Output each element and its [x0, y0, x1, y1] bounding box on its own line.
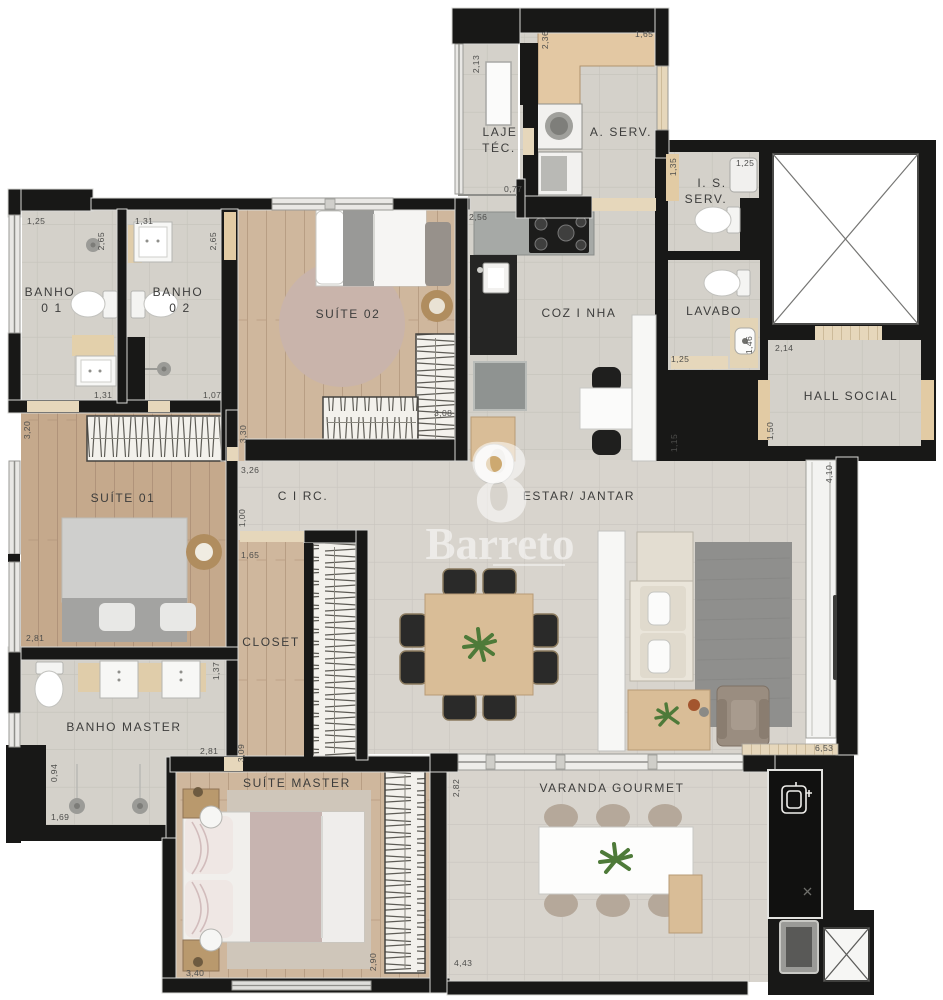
- svg-text:CLOSET: CLOSET: [242, 635, 300, 649]
- svg-text:C I RC.: C I RC.: [278, 489, 329, 503]
- svg-text:SUÍTE 01: SUÍTE 01: [91, 490, 156, 505]
- svg-text:VARANDA GOURMET: VARANDA GOURMET: [539, 781, 684, 795]
- svg-text:2,81: 2,81: [26, 633, 44, 643]
- svg-text:0,77: 0,77: [504, 184, 522, 194]
- svg-text:1,07: 1,07: [203, 390, 221, 400]
- svg-text:I. S.: I. S.: [697, 176, 726, 190]
- svg-text:6,53: 6,53: [815, 743, 833, 753]
- svg-text:2,13: 2,13: [471, 55, 481, 73]
- svg-text:2,90: 2,90: [368, 953, 378, 971]
- svg-text:1,37: 1,37: [211, 662, 221, 680]
- svg-text:3,40: 3,40: [186, 968, 204, 978]
- svg-text:2,65: 2,65: [96, 232, 106, 250]
- svg-text:LAJE: LAJE: [482, 125, 517, 139]
- svg-text:1,50: 1,50: [765, 422, 775, 440]
- svg-text:1,25: 1,25: [671, 354, 689, 364]
- svg-text:2,65: 2,65: [208, 232, 218, 250]
- svg-text:ESTAR/ JANTAR: ESTAR/ JANTAR: [523, 489, 635, 503]
- svg-text:1,35: 1,35: [668, 158, 678, 176]
- svg-text:1,65: 1,65: [635, 29, 653, 39]
- svg-text:3,08: 3,08: [434, 408, 452, 418]
- svg-text:1,46: 1,46: [744, 336, 754, 354]
- svg-text:2,36: 2,36: [540, 31, 550, 49]
- svg-text:BANHO: BANHO: [153, 285, 204, 299]
- svg-text:4,10: 4,10: [824, 465, 834, 483]
- svg-text:3,26: 3,26: [241, 465, 259, 475]
- svg-text:2,14: 2,14: [775, 343, 793, 353]
- svg-text:1,31: 1,31: [135, 216, 153, 226]
- svg-text:SUÍTE 02: SUÍTE 02: [316, 306, 381, 321]
- svg-text:COZ I NHA: COZ I NHA: [541, 306, 616, 320]
- svg-text:TÉC.: TÉC.: [482, 140, 516, 155]
- svg-text:2,81: 2,81: [200, 746, 218, 756]
- svg-text:3,20: 3,20: [22, 421, 32, 439]
- svg-text:3,30: 3,30: [238, 425, 248, 443]
- svg-text:2,56: 2,56: [469, 212, 487, 222]
- svg-text:1,65: 1,65: [241, 550, 259, 560]
- svg-text:1,69: 1,69: [51, 812, 69, 822]
- svg-text:BANHO MASTER: BANHO MASTER: [66, 720, 181, 734]
- svg-text:LAVABO: LAVABO: [686, 304, 742, 318]
- svg-text:4,43: 4,43: [454, 958, 472, 968]
- svg-text:SUÍTE MASTER: SUÍTE MASTER: [243, 775, 351, 790]
- svg-text:0 1: 0 1: [41, 301, 62, 315]
- svg-text:1,25: 1,25: [736, 158, 754, 168]
- svg-text:Barreto: Barreto: [425, 519, 574, 569]
- svg-text:1,31: 1,31: [94, 390, 112, 400]
- svg-text:HALL SOCIAL: HALL SOCIAL: [804, 389, 899, 403]
- svg-text:BANHO: BANHO: [25, 285, 76, 299]
- svg-text:0 2: 0 2: [169, 301, 190, 315]
- svg-text:SERV.: SERV.: [685, 192, 728, 206]
- svg-text:A. SERV.: A. SERV.: [590, 125, 652, 139]
- svg-text:1,00: 1,00: [237, 509, 247, 527]
- svg-text:1,25: 1,25: [27, 216, 45, 226]
- svg-text:2,82: 2,82: [451, 779, 461, 797]
- svg-text:0,94: 0,94: [49, 764, 59, 782]
- svg-text:1,15: 1,15: [669, 434, 679, 452]
- svg-text:3,09: 3,09: [236, 744, 246, 762]
